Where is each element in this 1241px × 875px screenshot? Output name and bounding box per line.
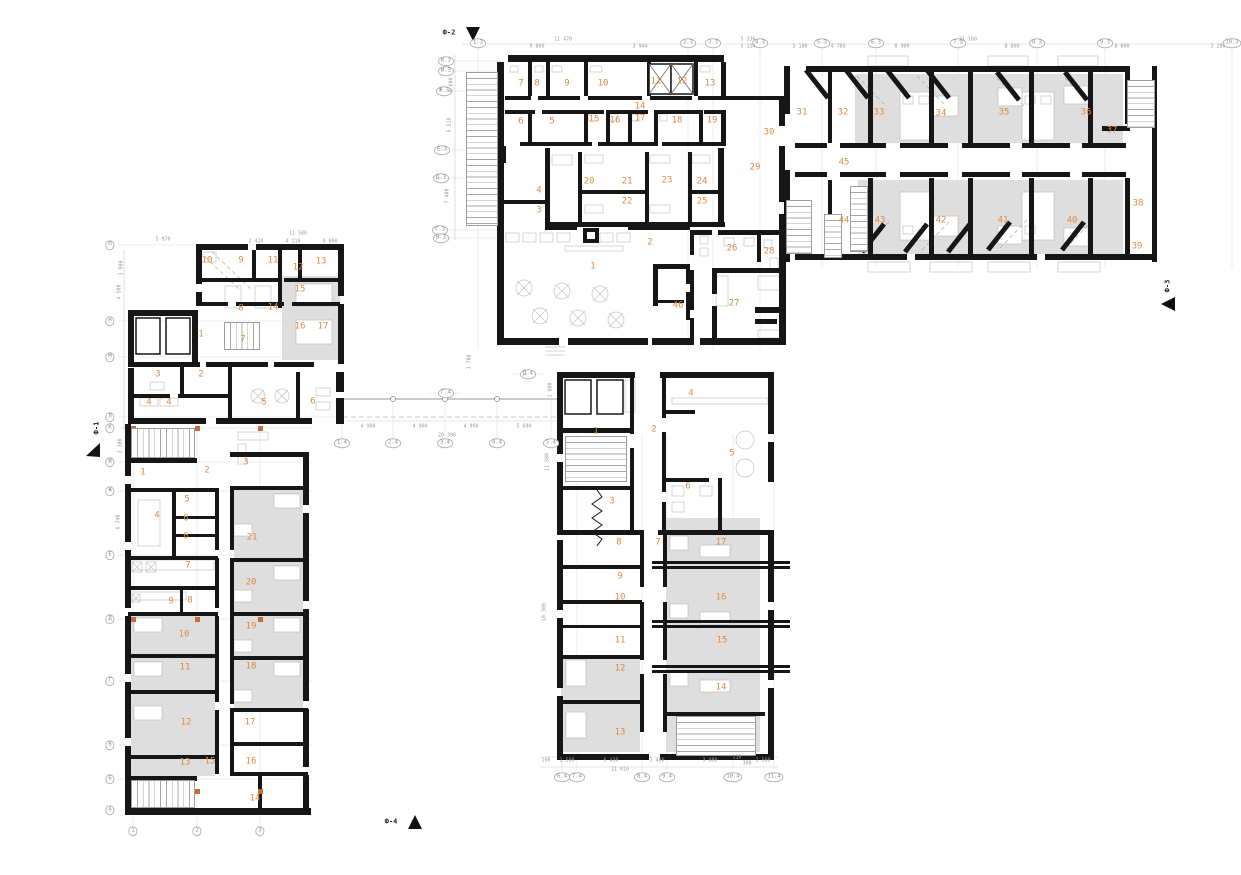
section-f3-arrow-icon — [1161, 297, 1175, 311]
stair — [131, 780, 195, 808]
equipment-layer — [136, 64, 779, 546]
stair — [786, 200, 812, 254]
locker-shelves — [824, 214, 842, 258]
stair — [131, 428, 195, 458]
stair — [224, 322, 260, 350]
floor-plan-canvas: 7891011121314651516171819432021222324251… — [0, 0, 1241, 875]
section-f1-arrow-icon — [86, 443, 100, 457]
stair — [676, 716, 756, 756]
stair — [565, 436, 627, 482]
stair — [1127, 80, 1155, 128]
section-f2-arrow-icon — [466, 27, 480, 41]
stair — [466, 72, 498, 226]
locker-shelves — [850, 186, 868, 252]
section-f4-arrow-icon — [408, 815, 422, 829]
